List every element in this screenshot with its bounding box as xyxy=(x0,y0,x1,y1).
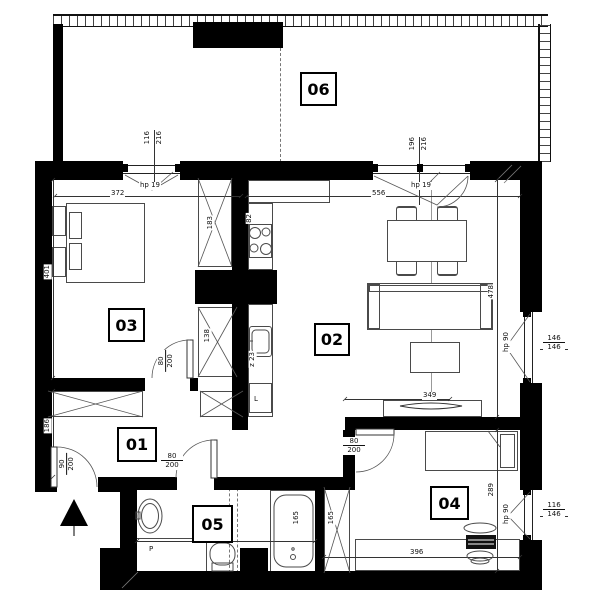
dim-hp19-b: hp 19 xyxy=(410,182,432,190)
dim-116: 116 xyxy=(144,130,152,145)
dim-146-146: 146 146 xyxy=(543,334,565,352)
dim-146-bot: 146 xyxy=(543,343,565,351)
balcony-left-wall xyxy=(53,24,63,162)
nightstand xyxy=(52,247,66,277)
door-height: 200 xyxy=(167,350,175,372)
door-height: 200 xyxy=(68,453,76,475)
dim-165-wardrobe: 165 xyxy=(328,510,336,525)
window-room04-east xyxy=(524,490,533,540)
dim-196: 196 xyxy=(409,136,417,151)
balcony-railing-top xyxy=(53,14,548,27)
wall-top-b xyxy=(180,161,373,180)
dim-line-186 xyxy=(53,391,54,477)
wall-bath-west xyxy=(120,490,137,573)
dim-138: 138 xyxy=(204,328,212,343)
wall-bath-north-a xyxy=(120,477,177,490)
room-label-06: 06 xyxy=(300,72,337,106)
wall-bath-north-b xyxy=(214,477,355,490)
door-bath-size: 80 200 xyxy=(161,452,183,470)
nightstand xyxy=(52,206,66,236)
sofa-back xyxy=(369,285,491,292)
dim-186: 186 xyxy=(44,418,52,433)
fridge-label: L xyxy=(253,396,259,404)
room-label-04: 04 xyxy=(430,486,469,520)
stove xyxy=(249,224,272,258)
wall-bottom xyxy=(100,571,542,590)
wall-tub-stub xyxy=(240,548,268,571)
bath-door-leaf xyxy=(211,440,217,478)
wall-kitchen-top xyxy=(232,180,248,272)
balcony-divider-wall xyxy=(193,22,283,48)
wardrobe-hall xyxy=(48,391,143,417)
entrance-arrow xyxy=(60,499,88,536)
window-mullion xyxy=(465,164,470,172)
dining-chair xyxy=(437,261,458,276)
dim-478: 478 xyxy=(488,284,496,299)
window-mullion xyxy=(523,312,531,317)
window-room02-east xyxy=(524,312,533,383)
room-number: 03 xyxy=(115,316,137,335)
window-mullion xyxy=(175,164,180,172)
door-room03-size: 80 200 xyxy=(157,350,175,372)
door-width: 80 xyxy=(157,350,166,372)
door-width: 90 xyxy=(58,453,67,475)
door-entry-size: 90 200 xyxy=(58,453,76,475)
dining-chair xyxy=(437,206,458,221)
dim-116-146: 116 146 xyxy=(543,501,565,519)
room-label-01: 01 xyxy=(117,427,157,462)
door-width: 80 xyxy=(161,452,183,461)
pillow xyxy=(69,243,82,270)
dim-82: 82 xyxy=(246,213,254,224)
pillow xyxy=(500,434,515,468)
dim-289: 289 xyxy=(488,482,496,497)
room-number: 05 xyxy=(201,515,223,534)
room-label-03: 03 xyxy=(108,308,145,342)
wardrobe-165 xyxy=(324,487,350,573)
wardrobe-183 xyxy=(198,178,232,267)
dim-372: 372 xyxy=(110,190,125,198)
floor-plan: 06 xyxy=(0,0,600,600)
washbasin xyxy=(136,499,162,533)
door-height: 200 xyxy=(161,461,183,469)
wall-top-c xyxy=(470,161,523,180)
wall-room02-04 xyxy=(345,417,523,430)
dim-116-top: 116 xyxy=(543,501,565,510)
shaft xyxy=(195,270,277,304)
dining-table xyxy=(387,220,467,262)
window-mullion xyxy=(523,535,531,540)
room-label-02: 02 xyxy=(314,323,350,356)
window-mullion xyxy=(123,164,128,172)
room-number: 02 xyxy=(321,330,343,349)
wall-kitchen-bottom xyxy=(232,304,248,430)
dim-349: 349 xyxy=(422,392,437,400)
wall-right-a xyxy=(520,161,542,312)
dim-z23: z 23 xyxy=(249,351,257,368)
toilet xyxy=(210,543,235,571)
washer-label: P xyxy=(148,546,154,554)
dim-line-401 xyxy=(53,180,54,378)
bathtub xyxy=(270,490,317,572)
dim-line-478 xyxy=(497,180,498,417)
dim-146-bot: 146 xyxy=(543,510,565,518)
dim-396: 396 xyxy=(409,549,424,557)
dim-hp90-a: hp 90 xyxy=(503,331,511,353)
wall-room03-door-stub xyxy=(190,378,198,391)
room-number: 01 xyxy=(126,435,148,454)
window-room03 xyxy=(123,165,180,174)
dining-chair xyxy=(396,261,417,276)
desk xyxy=(355,539,520,571)
balcony-railing-right xyxy=(538,24,551,162)
wall-bath-east xyxy=(315,487,324,573)
dim-line-396 xyxy=(324,557,520,558)
door-room04-size: 80 200 xyxy=(343,437,365,455)
dim-556: 556 xyxy=(371,190,386,198)
door-height: 200 xyxy=(343,446,365,454)
tv-stand xyxy=(383,400,482,417)
dim-216: 216 xyxy=(156,130,164,145)
room03-door-leaf xyxy=(187,340,193,378)
window-mullion xyxy=(373,164,378,172)
coffee-table xyxy=(410,342,460,373)
window-mullion xyxy=(417,164,423,172)
door-width: 80 xyxy=(343,437,365,446)
bath-dashed-line xyxy=(237,478,238,573)
wall-right-b xyxy=(520,383,542,490)
room-number: 06 xyxy=(307,80,329,99)
dim-216b: 216 xyxy=(421,136,429,151)
balcony-boundary-dashed xyxy=(280,48,281,162)
wall-entry-left xyxy=(35,477,57,492)
dim-183: 183 xyxy=(207,215,215,230)
dim-401: 401 xyxy=(44,264,52,279)
dim-line-372 xyxy=(55,196,241,197)
dim-line-289 xyxy=(497,430,498,571)
dim-165-tub: 165 xyxy=(293,510,301,525)
window-mullion xyxy=(523,490,531,495)
room-number: 04 xyxy=(438,494,460,513)
sofa-armrest xyxy=(368,284,380,329)
dining-chair xyxy=(396,206,417,221)
dim-hp90-b: hp 90 xyxy=(503,503,511,525)
pillow xyxy=(69,212,82,239)
room-label-05: 05 xyxy=(192,505,233,543)
dim-hp19-a: hp 19 xyxy=(139,182,161,190)
kitchen-counter-top xyxy=(248,180,330,203)
wall-room03-south xyxy=(35,378,145,391)
dim-146-top: 146 xyxy=(543,334,565,343)
wall-bottom-left-corner xyxy=(100,548,120,571)
window-mullion xyxy=(523,378,531,383)
